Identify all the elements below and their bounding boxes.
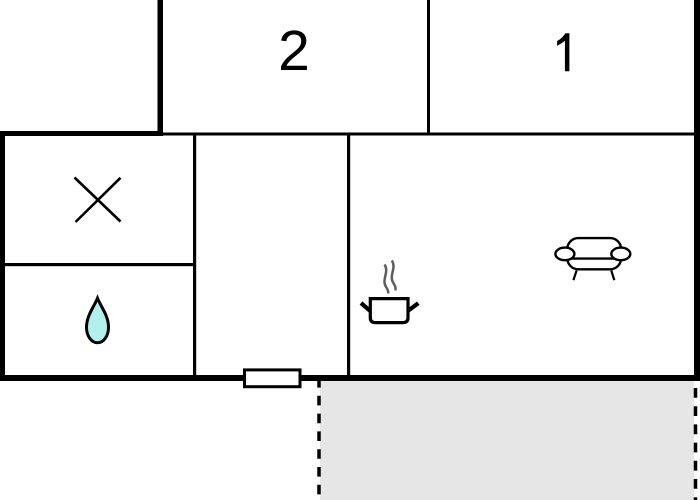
svg-text:2: 2 (278, 19, 310, 83)
